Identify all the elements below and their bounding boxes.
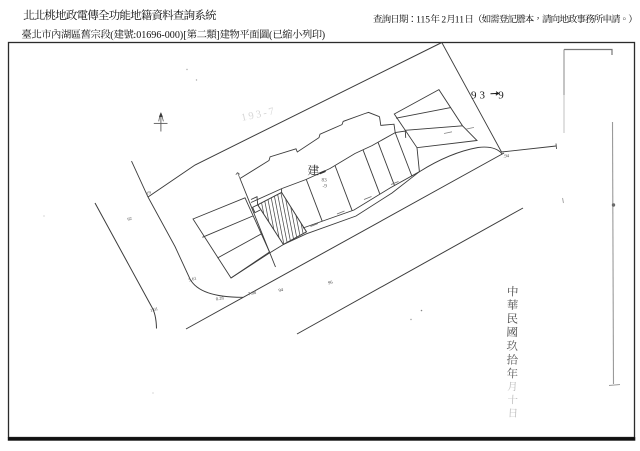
svg-text::01696-000)[: :01696-000)[ (133, 30, 186, 41)
svg-text:]: ] (216, 30, 219, 41)
svg-text:93: 93 (471, 90, 488, 102)
svg-text:2: 2 (441, 14, 446, 25)
svg-text:9: 9 (498, 90, 504, 102)
svg-text:11: 11 (455, 14, 464, 25)
svg-text:-9: -9 (323, 183, 328, 189)
svg-text:): ) (322, 30, 325, 41)
svg-text:115: 115 (416, 14, 430, 25)
